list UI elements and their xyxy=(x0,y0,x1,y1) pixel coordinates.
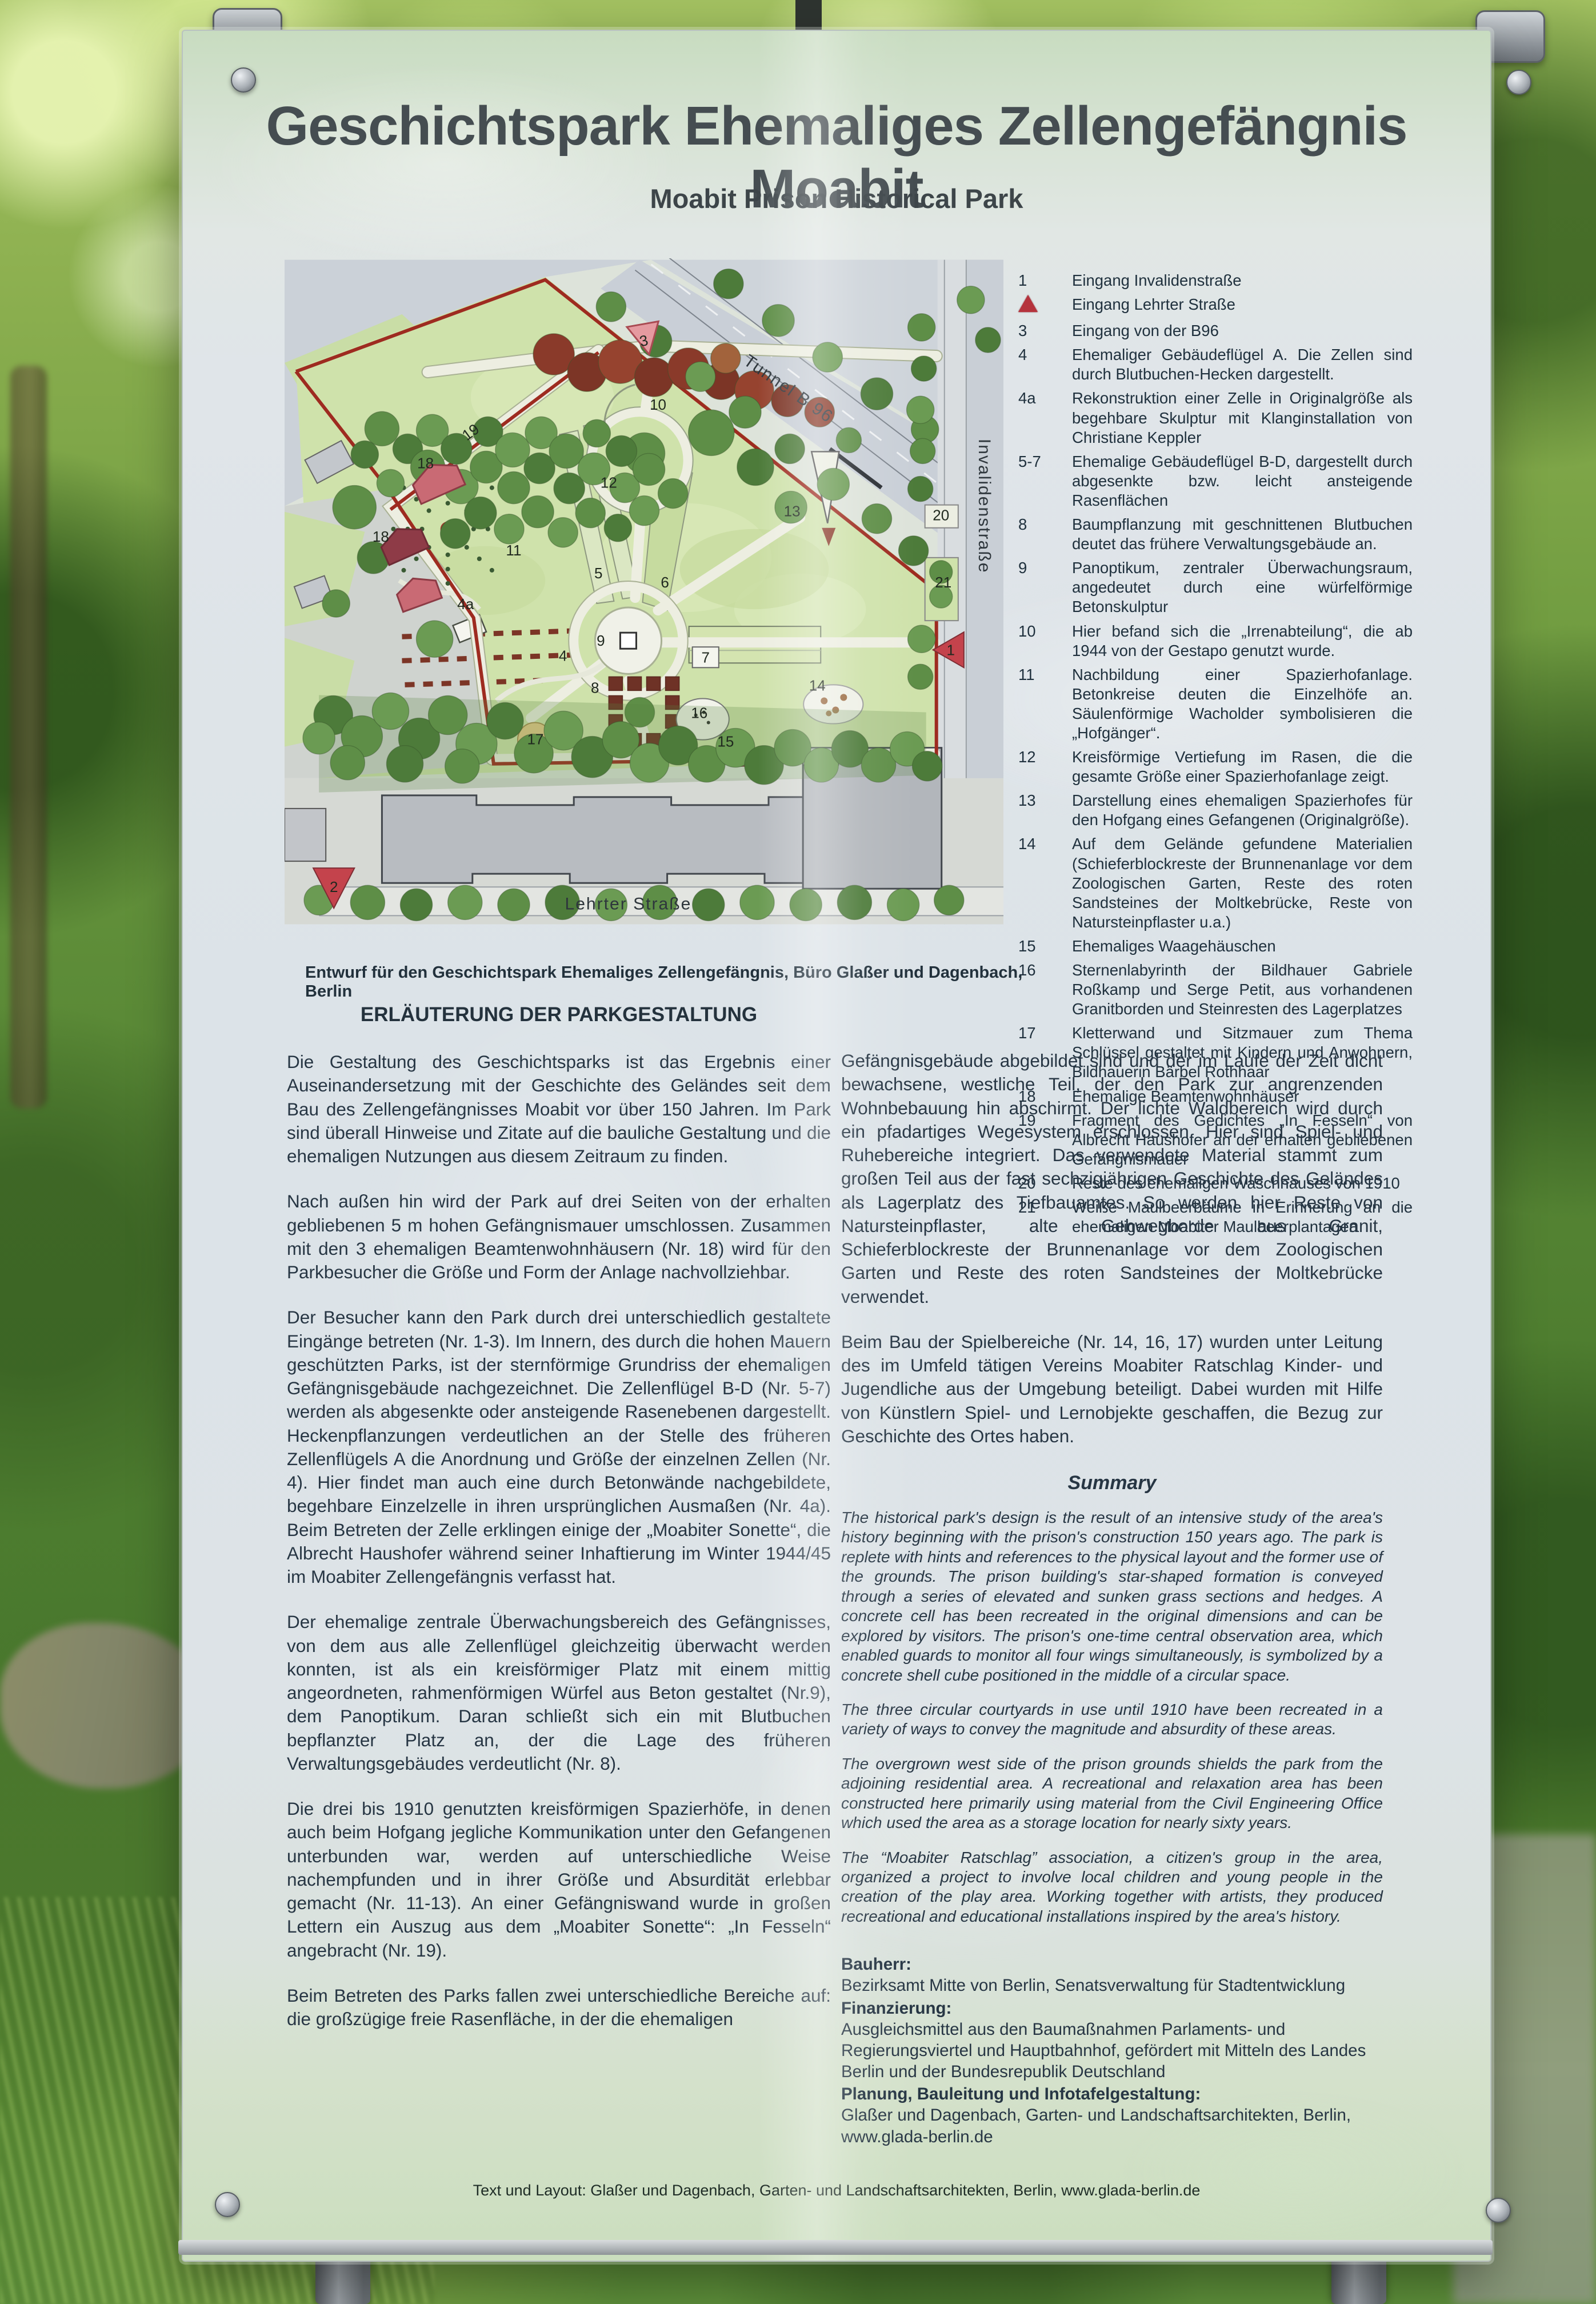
body-paragraph: The overgrown west side of the prison gr… xyxy=(841,1754,1383,1833)
legend-item-number: 1 xyxy=(1018,271,1069,290)
sign-subtitle: Moabit Prison Historical Park xyxy=(183,183,1490,214)
legend-item: 16Sternenlabyrinth der Bildhauer Gabriel… xyxy=(1018,961,1413,1019)
article-left-column: ERLÄUTERUNG DER PARKGESTALTUNG Die Gesta… xyxy=(287,1003,831,2053)
screw-icon xyxy=(231,67,256,93)
legend-item-number: 3 xyxy=(1018,321,1069,341)
body-paragraph: Der Besucher kann den Park durch drei un… xyxy=(287,1306,831,1589)
article-right-column: Gefängnisgebäude abgebildet sind und der… xyxy=(841,1049,1383,2149)
legend-item-text: Hier befand sich die „Irrenabteilung“, d… xyxy=(1072,622,1413,661)
map-marker-number: 21 xyxy=(935,574,951,591)
body-paragraph: Beim Betreten des Parks fallen zwei unte… xyxy=(287,1984,831,2031)
legend-item: 14Auf dem Gelände gefundene Materialien … xyxy=(1018,834,1413,931)
screw-icon xyxy=(1506,70,1531,95)
map-marker-number: 18 xyxy=(373,528,389,545)
legend-item-text: Eingang von der B96 xyxy=(1072,321,1413,341)
map-marker-number: 2 xyxy=(330,878,338,895)
dirt-path xyxy=(0,1623,211,1789)
credit-label: Planung, Bauleitung und Infotafelgestalt… xyxy=(841,2083,1383,2105)
legend-item: 12Kreisförmige Vertiefung im Rasen, die … xyxy=(1018,747,1413,786)
legend-item-number: 16 xyxy=(1018,961,1069,1019)
map-marker-number: 8 xyxy=(591,679,599,696)
park-map-plan: .t1{fill:#5e8e47}.t2{fill:#4d7b3a}.t3{fi… xyxy=(285,258,1003,926)
legend-item-number: 9 xyxy=(1018,558,1069,617)
body-paragraph: Nach außen hin wird der Park auf drei Se… xyxy=(287,1190,831,1284)
legend-item-number: 10 xyxy=(1018,622,1069,661)
map-marker-number: 5 xyxy=(594,565,603,582)
legend-item-number: 15 xyxy=(1018,937,1069,956)
residential-building xyxy=(382,795,858,883)
body-paragraph: Die Gestaltung des Geschichtsparks ist d… xyxy=(287,1050,831,1168)
park-map: .t1{fill:#5e8e47}.t2{fill:#4d7b3a}.t3{fi… xyxy=(285,258,1003,926)
map-marker-number: 14 xyxy=(809,677,826,694)
legend-item-text: Ehemalige Gebäudeflügel B-D, dargestellt… xyxy=(1072,452,1413,510)
map-marker-number: 1 xyxy=(947,641,955,658)
panoptikum-cube xyxy=(620,633,636,649)
bottom-rail xyxy=(178,2240,1493,2255)
article-heading: ERLÄUTERUNG DER PARKGESTALTUNG xyxy=(287,1003,831,1026)
legend-item-text: Eingang Lehrter Straße xyxy=(1072,295,1413,317)
invalidenstrasse-label: Invalidenstraße xyxy=(975,439,994,574)
map-marker-number: 9 xyxy=(597,632,605,649)
legend-item-text: Eingang Invalidenstraße xyxy=(1072,271,1413,290)
legend-item-text: Darstellung eines ehemaligen Spazierhofe… xyxy=(1072,791,1413,830)
screw-icon xyxy=(215,2192,240,2217)
photo-scene: Geschichtspark Ehemaliges Zellengefängni… xyxy=(0,0,1596,2304)
summary-heading: Summary xyxy=(841,1472,1383,1494)
map-marker-number: 12 xyxy=(601,474,617,491)
body-paragraph: The “Moabiter Ratschlag” association, a … xyxy=(841,1848,1383,1927)
credit-label: Finanzierung: xyxy=(841,1998,1383,2019)
map-marker-number: 4a xyxy=(457,595,474,613)
legend-item: 15Ehemaliges Waagehäuschen xyxy=(1018,937,1413,956)
entrance-triangle-icon xyxy=(1018,295,1038,312)
map-marker-number: 13 xyxy=(784,503,801,520)
legend-item-number: 14 xyxy=(1018,834,1069,931)
legend-item: 4aRekonstruktion einer Zelle in Original… xyxy=(1018,389,1413,447)
map-caption: Entwurf für den Geschichtspark Ehemalige… xyxy=(305,963,1037,1001)
map-marker-number: 6 xyxy=(661,574,669,591)
body-paragraph: Gefängnisgebäude abgebildet sind und der… xyxy=(841,1049,1383,1309)
legend-item-text: Ehemaliges Waagehäuschen xyxy=(1072,937,1413,956)
screw-icon xyxy=(1486,2198,1511,2223)
summary-paragraphs: The historical park's design is the resu… xyxy=(841,1508,1383,1926)
sign-footer-credit: Text und Layout: Glaßer und Dagenbach, G… xyxy=(183,2182,1490,2199)
body-paragraph: Der ehemalige zentrale Überwachungsberei… xyxy=(287,1610,831,1775)
legend-item: 10Hier befand sich die „Irrenabteilung“,… xyxy=(1018,622,1413,661)
legend-item-number: 5-7 xyxy=(1018,452,1069,510)
legend-item: 9Panoptikum, zentraler Überwachungsraum,… xyxy=(1018,558,1413,617)
credit-text: Bezirksamt Mitte von Berlin, Senatsverwa… xyxy=(841,1975,1383,1996)
legend-item-number: 11 xyxy=(1018,665,1069,743)
legend-item-number: 8 xyxy=(1018,515,1069,554)
left-paragraphs: Die Gestaltung des Geschichtsparks ist d… xyxy=(287,1050,831,2031)
legend-item-text: Auf dem Gelände gefundene Materialien (S… xyxy=(1072,834,1413,931)
legend-item: 11Nachbildung einer Spazierhofanlage. Be… xyxy=(1018,665,1413,743)
legend-item-text: Rekonstruktion einer Zelle in Originalgr… xyxy=(1072,389,1413,447)
body-paragraph: Beim Bau der Spielbereiche (Nr. 14, 16, … xyxy=(841,1330,1383,1448)
legend-item-text: Panoptikum, zentraler Überwachungsraum, … xyxy=(1072,558,1413,617)
credit-label: Bauherr: xyxy=(841,1954,1383,1975)
lehrter-strasse-label: Lehrter Straße xyxy=(565,894,691,913)
legend-item: 3Eingang von der B96 xyxy=(1018,321,1413,341)
legend-item-text: Kreisförmige Vertiefung im Rasen, die di… xyxy=(1072,747,1413,786)
legend-item-text: Baumpflanzung mit geschnittenen Blutbuch… xyxy=(1072,515,1413,554)
summary-section: Summary The historical park's design is … xyxy=(841,1472,1383,1926)
legend-item-number: 4a xyxy=(1018,389,1069,447)
map-marker-number: 17 xyxy=(527,731,544,748)
legend-item-number xyxy=(1018,295,1069,317)
map-marker-number: 11 xyxy=(506,542,521,559)
body-paragraph: The historical park's design is the resu… xyxy=(841,1508,1383,1685)
tree-trunk xyxy=(10,366,47,1109)
credit-text: Glaßer und Dagenbach, Garten- und Landsc… xyxy=(841,2105,1383,2147)
information-sign-panel: Geschichtspark Ehemaliges Zellengefängni… xyxy=(182,30,1491,2262)
map-marker-number: 20 xyxy=(933,507,949,524)
map-marker-number: 18 xyxy=(417,454,434,471)
map-marker-number: 15 xyxy=(717,733,734,750)
legend-item-number: 13 xyxy=(1018,791,1069,830)
credit-text: Ausgleichsmittel aus den Baumaßnahmen Pa… xyxy=(841,2019,1383,2082)
legend-item-number: 4 xyxy=(1018,345,1069,384)
legend-item: 5-7Ehemalige Gebäudeflügel B-D, dargeste… xyxy=(1018,452,1413,510)
credits-section: Bauherr:Bezirksamt Mitte von Berlin, Sen… xyxy=(841,1954,1383,2147)
right-paragraphs: Gefängnisgebäude abgebildet sind und der… xyxy=(841,1049,1383,1448)
legend-item-number: 12 xyxy=(1018,747,1069,786)
legend-item: 4Ehemaliger Gebäudeflügel A. Die Zellen … xyxy=(1018,345,1413,384)
legend-item-text: Sternenlabyrinth der Bildhauer Gabriele … xyxy=(1072,961,1413,1019)
legend-item: 8Baumpflanzung mit geschnittenen Blutbuc… xyxy=(1018,515,1413,554)
body-paragraph: Die drei bis 1910 genutzten kreisförmige… xyxy=(287,1797,831,1962)
map-marker-number: 16 xyxy=(691,705,707,722)
body-paragraph: The three circular courtyards in use unt… xyxy=(841,1700,1383,1739)
legend-item-text: Nachbildung einer Spazierhofanlage. Beto… xyxy=(1072,665,1413,743)
legend-item: 1Eingang Invalidenstraße xyxy=(1018,271,1413,290)
map-marker-number: 4 xyxy=(559,647,567,664)
map-marker-number: 10 xyxy=(650,396,666,413)
legend-item: 13Darstellung eines ehemaligen Spazierho… xyxy=(1018,791,1413,830)
map-marker-number: 7 xyxy=(702,649,710,666)
legend-item: Eingang Lehrter Straße xyxy=(1018,295,1413,317)
legend-item-text: Ehemaliger Gebäudeflügel A. Die Zellen s… xyxy=(1072,345,1413,384)
